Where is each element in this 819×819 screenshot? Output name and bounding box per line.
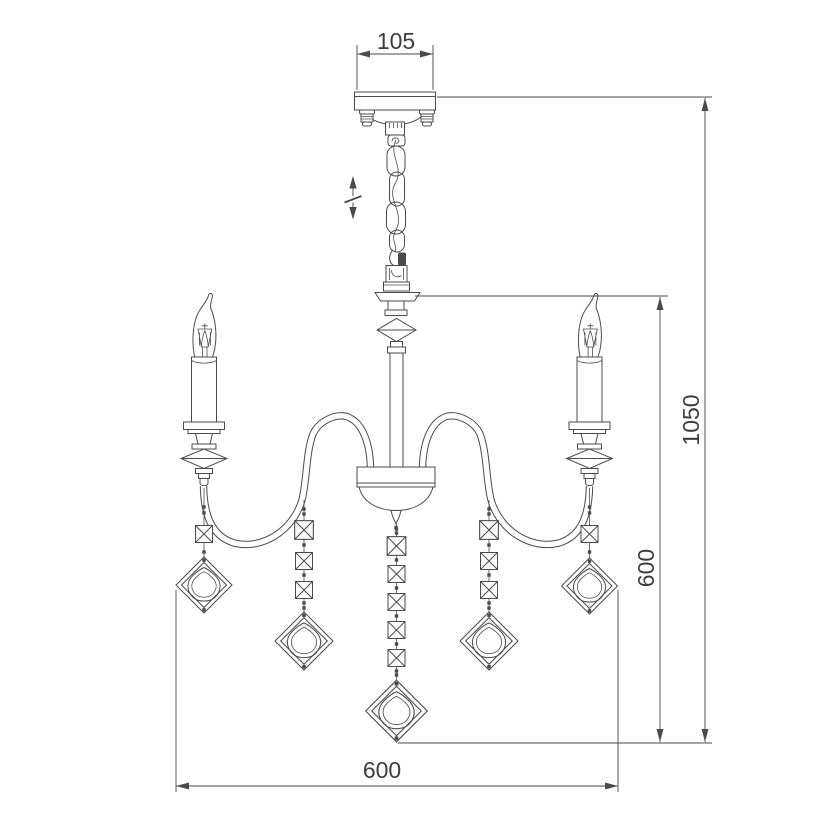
left-candle — [181, 293, 227, 485]
diamond-pendant — [460, 612, 518, 670]
dim-drop-height-label: 600 — [633, 549, 659, 587]
dim-canopy-width: 105 — [357, 28, 433, 90]
diamond-pendant — [366, 680, 428, 742]
canopy-screw-left — [360, 110, 375, 126]
chain-connector — [384, 250, 410, 291]
suspension-chain — [384, 140, 410, 291]
dim-overall-height-label: 1050 — [678, 394, 704, 445]
height-adjust-icon — [345, 176, 362, 220]
center-stem — [390, 353, 403, 468]
diamond-pendant — [275, 612, 333, 670]
dim-drop-height: 600 — [415, 296, 668, 742]
center-finial — [375, 293, 420, 469]
left-arm — [204, 416, 371, 545]
crystal-strand-center — [366, 524, 428, 742]
crystal-strand-left — [176, 488, 232, 613]
dim-body-width-label: 600 — [363, 757, 401, 783]
right-candle — [567, 293, 613, 485]
crystal-strand-right — [562, 488, 618, 614]
crystal-bead — [387, 537, 406, 556]
dim-canopy-width-label: 105 — [377, 28, 415, 54]
crystal-bead — [480, 521, 499, 540]
crystal-bead — [296, 553, 313, 570]
crystal-bead — [295, 521, 314, 540]
crystal-bead — [388, 622, 405, 639]
crystal-bead — [196, 526, 213, 543]
diamond-pendant — [176, 557, 232, 613]
crystal-bead — [388, 650, 405, 667]
drawing-canvas: 105 1050 600 600 — [0, 0, 819, 819]
diamond-pendant — [562, 558, 618, 614]
center-hub — [357, 467, 435, 529]
chandelier-dimension-drawing: 105 1050 600 600 — [0, 0, 819, 819]
canopy-screw-right — [420, 110, 435, 126]
ceiling-canopy — [355, 92, 436, 146]
right-arm — [423, 416, 590, 545]
crystal-bead — [388, 566, 405, 583]
crystal-bead — [581, 526, 598, 543]
crystal-bead — [481, 582, 498, 599]
crystal-bead — [481, 553, 498, 570]
crystal-bead — [388, 594, 405, 611]
crystal-bead — [296, 582, 313, 599]
